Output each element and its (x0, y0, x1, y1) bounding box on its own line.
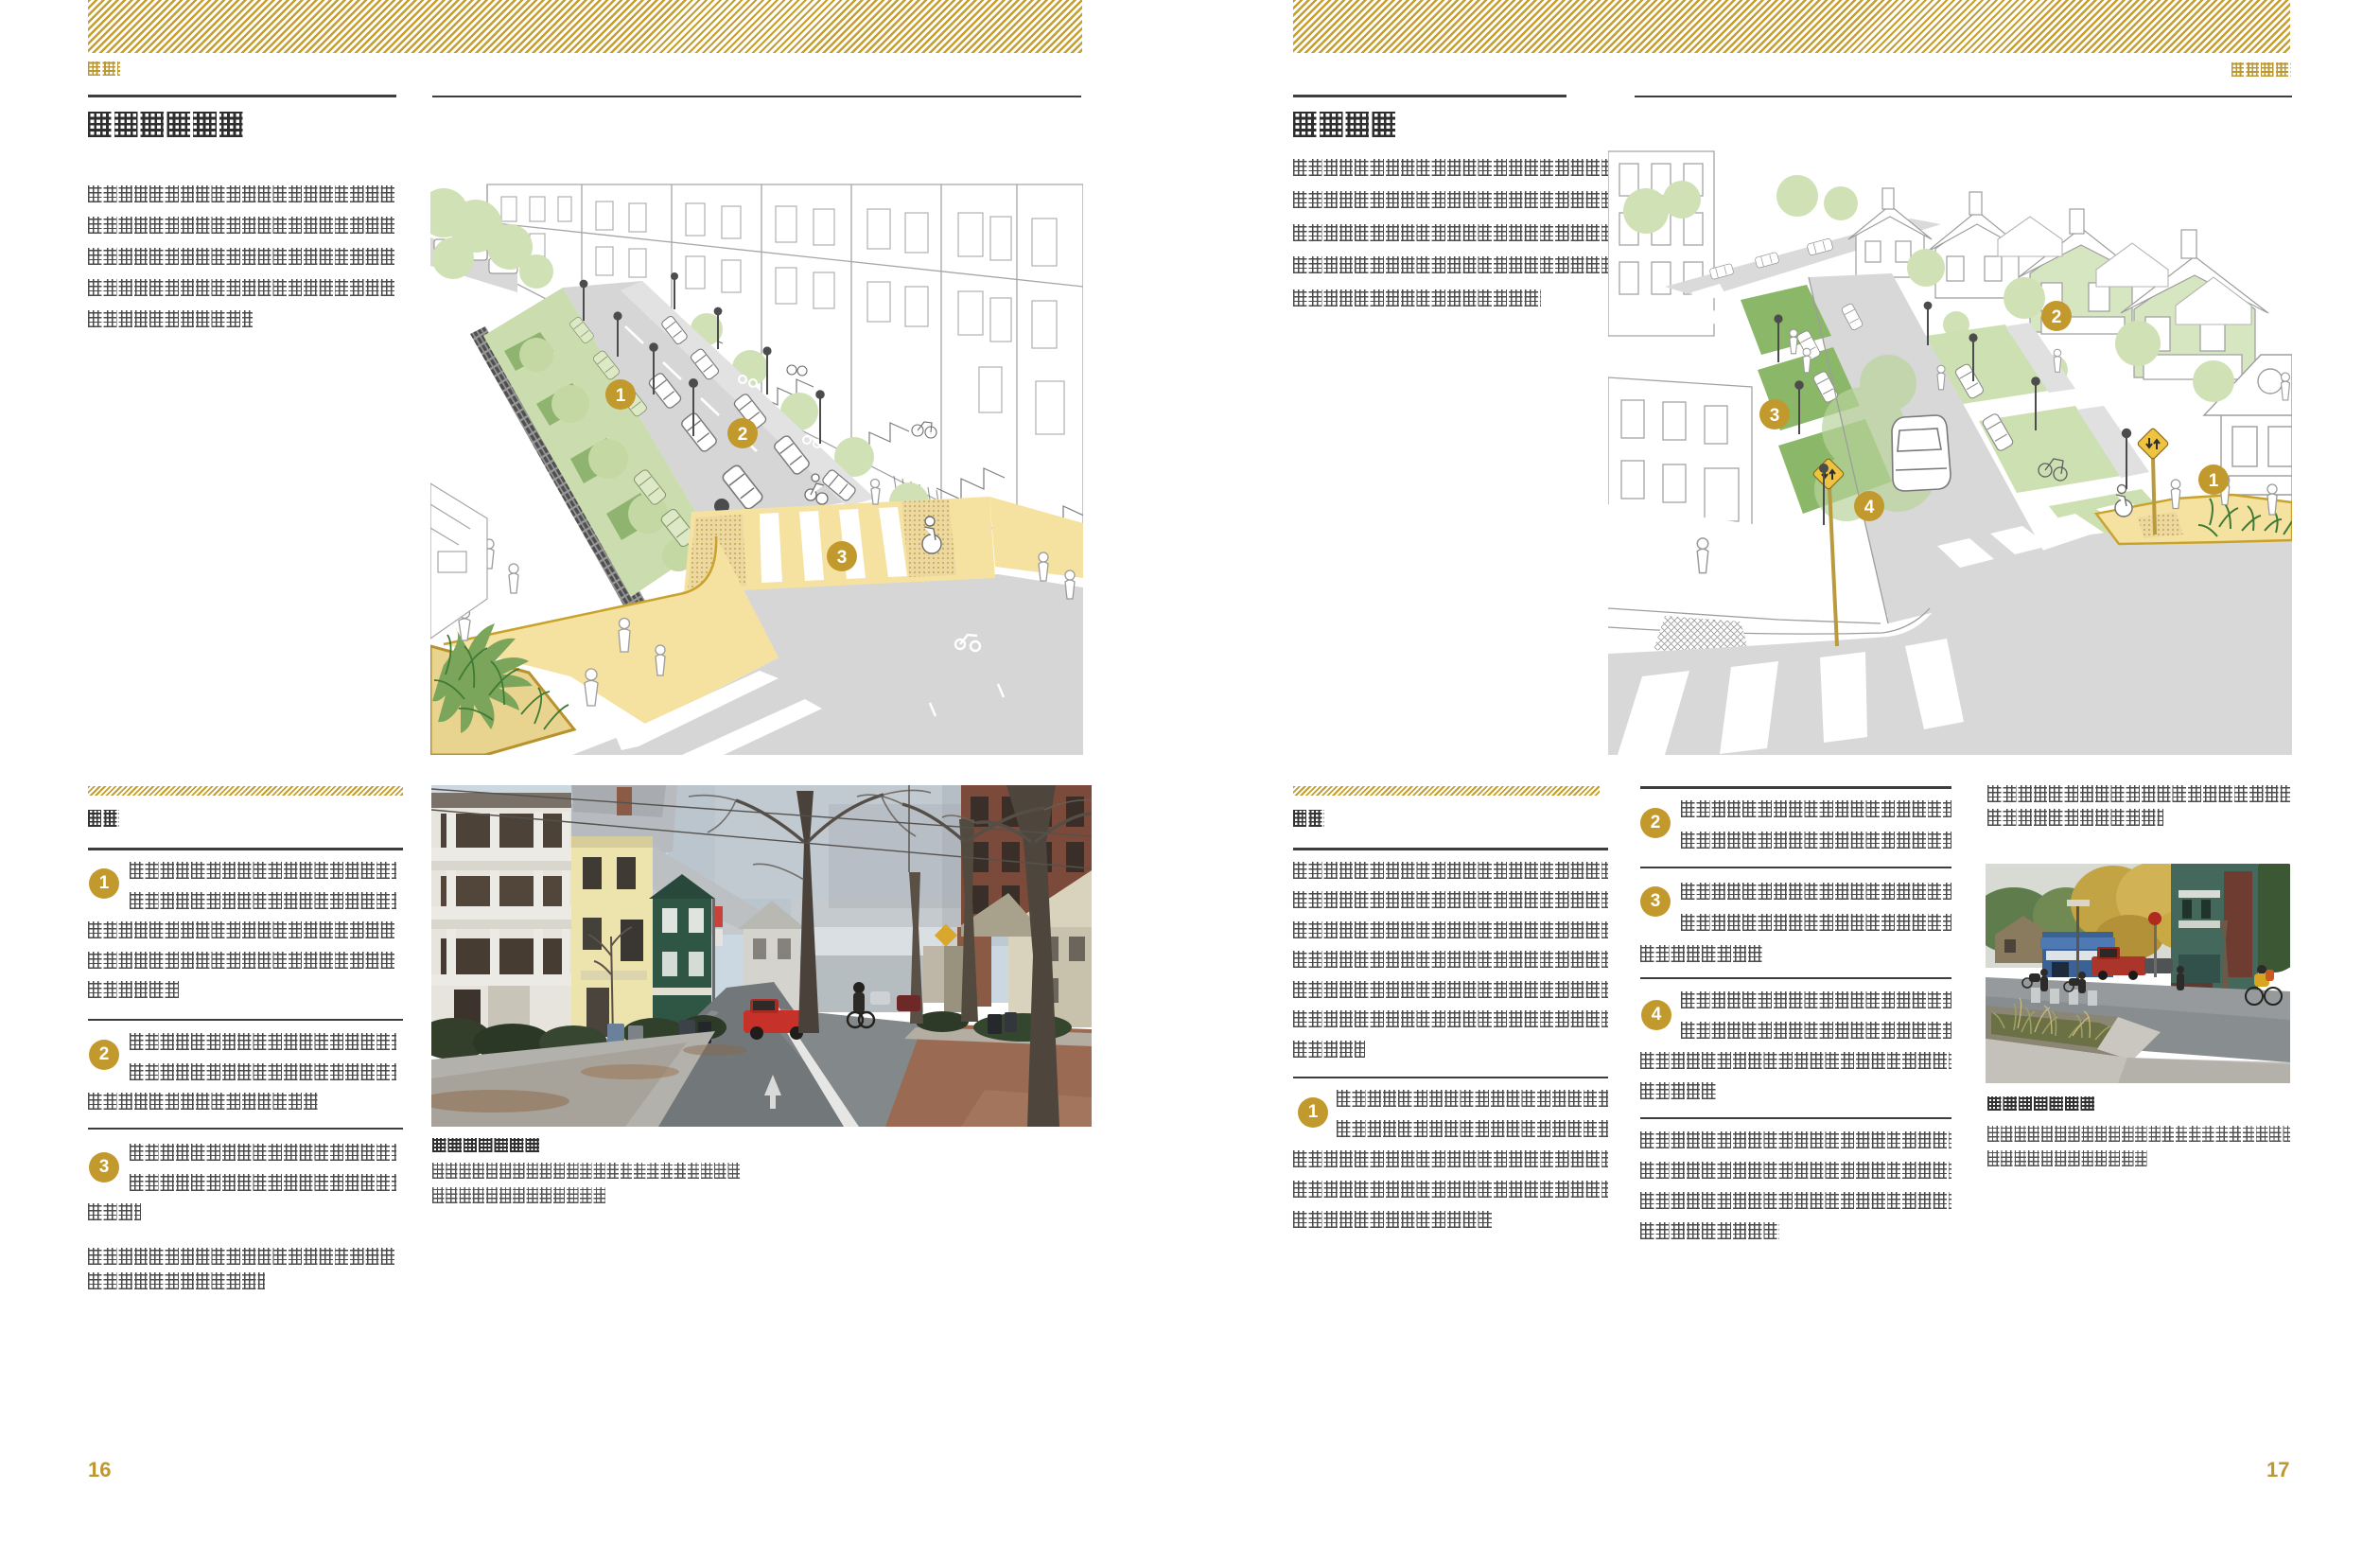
svg-text:3: 3 (1770, 406, 1780, 426)
svg-text:2: 2 (738, 425, 748, 445)
svg-text:1: 1 (616, 386, 626, 406)
svg-text:1: 1 (2209, 471, 2219, 491)
svg-text:4: 4 (1864, 498, 1875, 517)
svg-text:3: 3 (837, 548, 848, 568)
svg-text:2: 2 (2052, 307, 2062, 327)
